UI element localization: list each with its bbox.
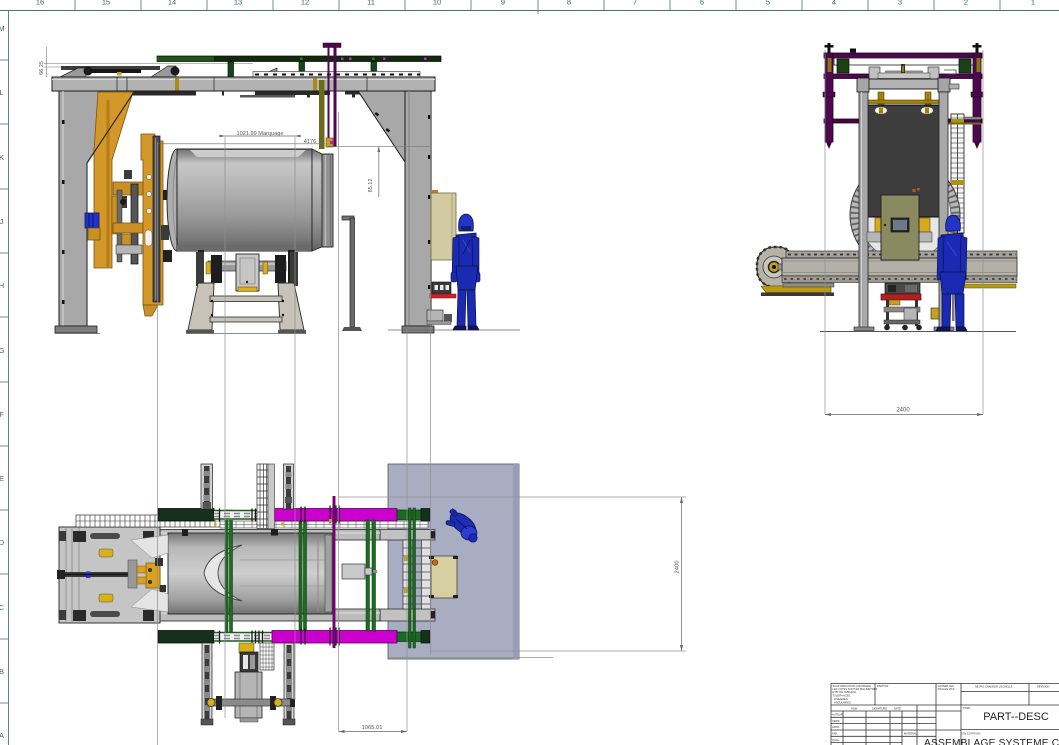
svg-text:A: A: [0, 731, 4, 740]
svg-text:4: 4: [832, 0, 836, 7]
svg-text:L: L: [0, 88, 4, 97]
svg-text:5: 5: [766, 0, 770, 7]
svg-text:LINEAIRES:: LINEAIRES:: [834, 697, 849, 701]
svg-text:ANGLES VIFS: ANGLES VIFS: [938, 687, 955, 691]
svg-text:AUTEUR: AUTEUR: [832, 713, 843, 717]
svg-text:FAB.: FAB.: [832, 732, 838, 736]
svg-text:1: 1: [1031, 0, 1035, 7]
svg-text:G: G: [0, 346, 5, 355]
svg-text:1065.01: 1065.01: [362, 725, 383, 731]
svg-text:2: 2: [964, 0, 968, 7]
svg-text:D: D: [0, 538, 5, 547]
svg-text:7: 7: [633, 0, 637, 7]
svg-text:10: 10: [433, 0, 441, 7]
svg-text:13: 13: [234, 0, 242, 7]
svg-text:2400: 2400: [896, 408, 910, 414]
svg-text:REVISION: REVISION: [1037, 685, 1050, 689]
svg-text:11: 11: [367, 0, 375, 7]
svg-text:DATE: DATE: [894, 707, 901, 711]
svg-text:F: F: [0, 410, 4, 419]
svg-text:FINITION:: FINITION:: [877, 684, 889, 688]
svg-text:M: M: [0, 24, 5, 33]
svg-text:APPR.: APPR.: [832, 725, 840, 729]
svg-text:6: 6: [700, 0, 704, 7]
svg-text:J: J: [0, 217, 4, 226]
svg-text:NOM: NOM: [851, 707, 857, 711]
svg-text:QUAL.: QUAL.: [832, 738, 840, 742]
svg-text:2400: 2400: [675, 561, 681, 574]
svg-text:NE PAS CHANGER L'ECHELLE: NE PAS CHANGER L'ECHELLE: [975, 685, 1013, 689]
svg-text:16: 16: [36, 0, 44, 7]
svg-text:ETAT DE SURFACE:: ETAT DE SURFACE:: [833, 690, 857, 694]
svg-text:ASSEMBLAGE SYSTEME CO: ASSEMBLAGE SYSTEME CO: [924, 738, 1059, 745]
svg-text:TOLERANCES:: TOLERANCES:: [833, 694, 852, 698]
svg-text:SIGNATURE: SIGNATURE: [872, 707, 887, 711]
svg-text:H: H: [0, 281, 4, 290]
svg-text:12: 12: [301, 0, 309, 7]
svg-text:15: 15: [102, 0, 110, 7]
svg-text:PART--DESC: PART--DESC: [983, 711, 1049, 723]
svg-text:VERIF.: VERIF.: [832, 719, 840, 723]
svg-text:8: 8: [567, 0, 571, 7]
svg-text:14: 14: [168, 0, 176, 7]
svg-text:B: B: [0, 667, 4, 676]
svg-text:65.12: 65.12: [368, 179, 374, 193]
svg-text:3: 3: [898, 0, 902, 7]
svg-text:4176: 4176: [304, 139, 316, 145]
svg-text:E: E: [0, 474, 4, 483]
svg-text:TITRE:: TITRE:: [963, 706, 971, 710]
svg-text:EN COTATION:: EN COTATION:: [963, 732, 981, 736]
svg-text:ANGULAIRES:: ANGULAIRES:: [834, 701, 852, 705]
svg-text:MATERIAU:: MATERIAU:: [904, 732, 918, 736]
svg-text:66.25: 66.25: [39, 61, 45, 75]
svg-text:K: K: [0, 153, 4, 162]
svg-text:C: C: [0, 603, 5, 612]
svg-text:9: 9: [501, 0, 505, 7]
